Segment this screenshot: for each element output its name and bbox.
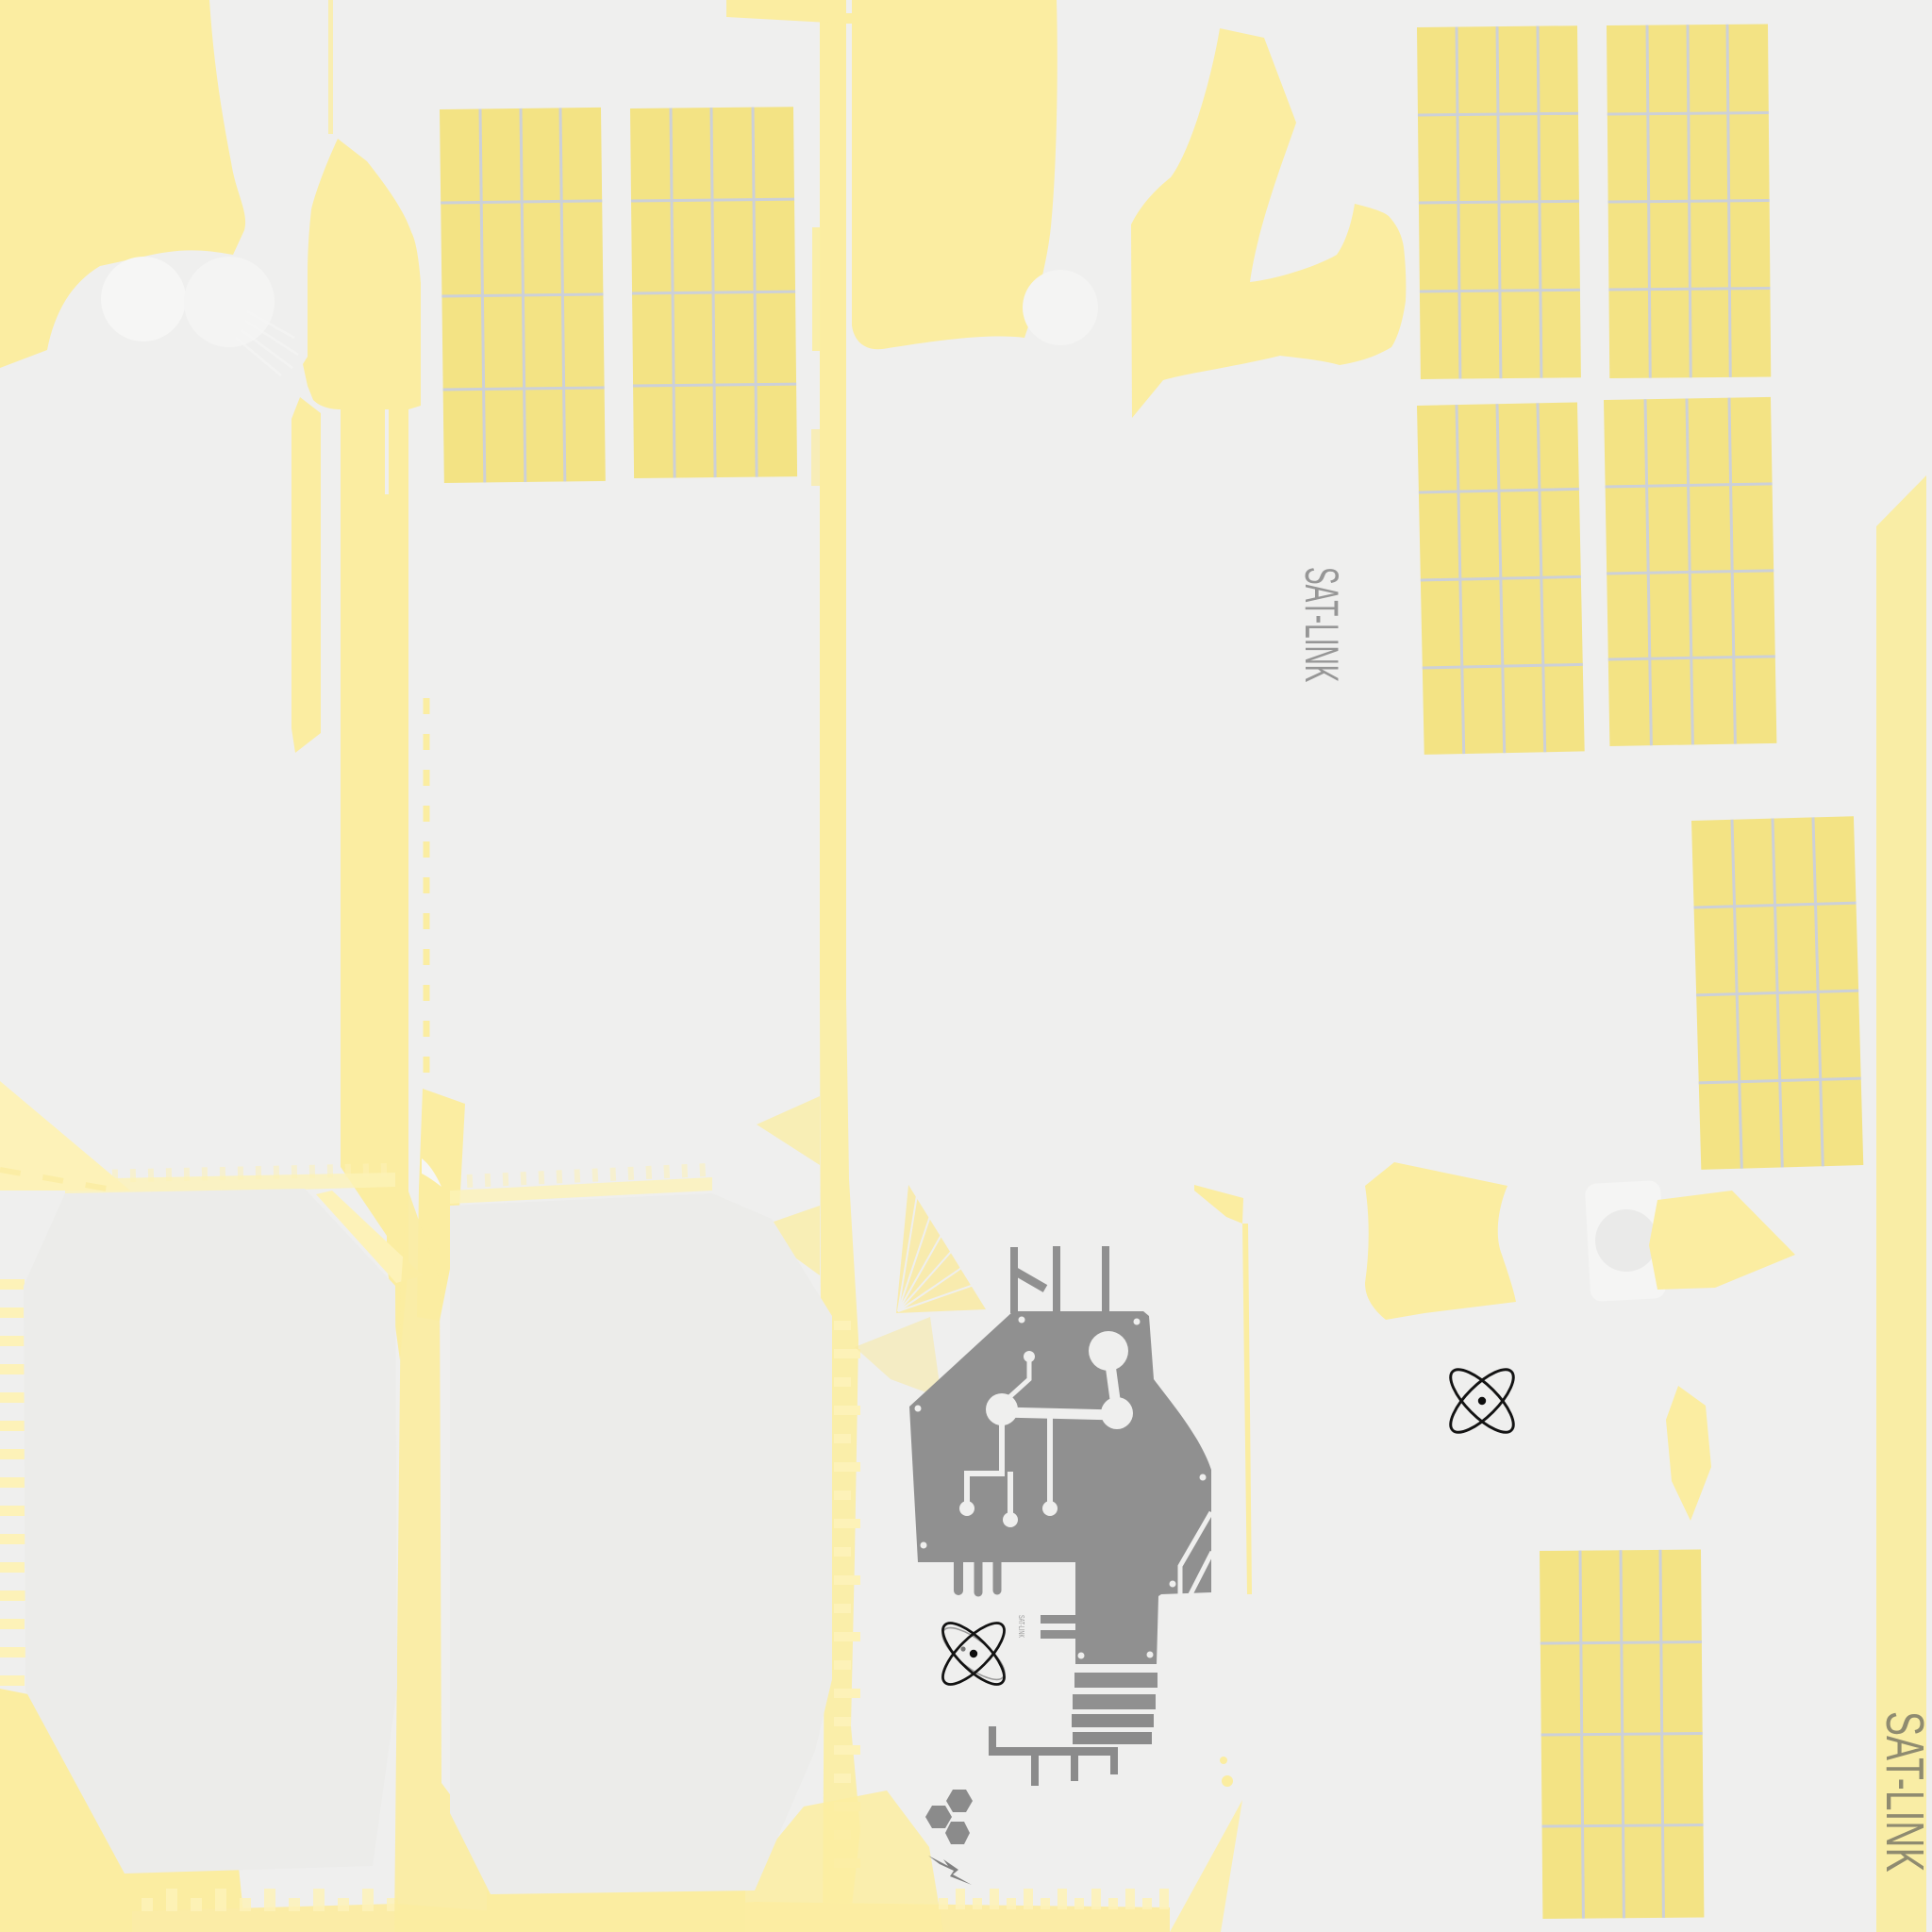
svg-text:SAT-LINK: SAT-LINK: [1295, 567, 1349, 682]
svg-text:SAT-LINK: SAT-LINK: [1874, 1711, 1932, 1872]
svg-text:SAT-LINK: SAT-LINK: [1017, 1615, 1024, 1638]
